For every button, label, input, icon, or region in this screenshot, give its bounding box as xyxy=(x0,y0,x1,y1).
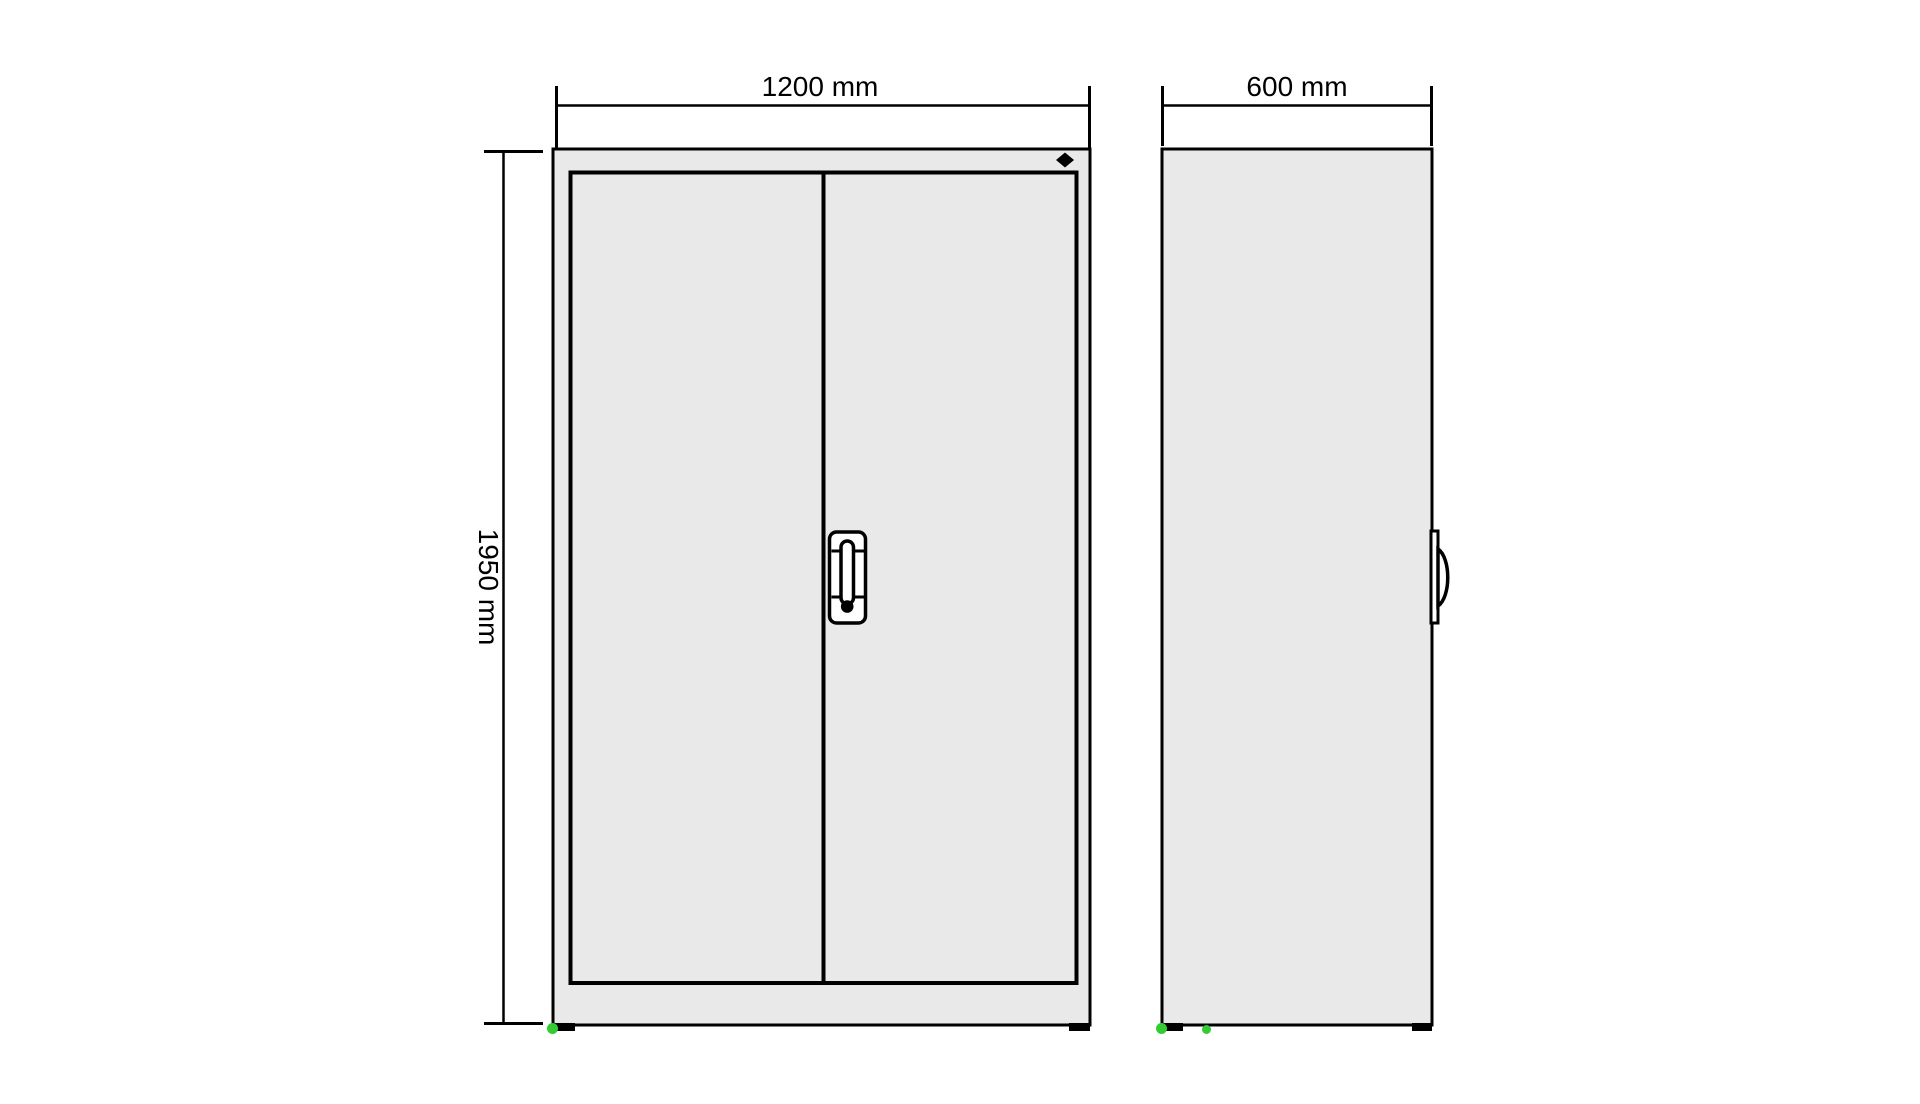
dimension-width-label: 1200 mm xyxy=(762,71,879,102)
front-view xyxy=(547,149,1090,1034)
door-handle xyxy=(830,532,866,623)
dimension-height-label: 1950 mm xyxy=(473,529,504,646)
side-view xyxy=(1156,149,1448,1034)
side-foot-right xyxy=(1412,1023,1432,1031)
side-handle-profile xyxy=(1431,531,1448,623)
side-foot-marker-dot-left xyxy=(1156,1023,1167,1034)
dimension-depth-label: 600 mm xyxy=(1246,71,1347,102)
front-foot-right xyxy=(1069,1023,1090,1031)
dimension-depth: 600 mm xyxy=(1162,71,1432,146)
handle-grip-bar xyxy=(841,541,854,604)
front-foot-marker-dot xyxy=(547,1023,558,1034)
dimension-height: 1950 mm xyxy=(473,151,543,1024)
side-cabinet-body xyxy=(1162,149,1432,1025)
dimension-width: 1200 mm xyxy=(556,71,1090,148)
keyhole-icon xyxy=(841,600,854,613)
technical-drawing: 1200 mm 600 mm 1950 mm xyxy=(0,0,1920,1104)
side-foot-marker-dot-mid xyxy=(1202,1025,1211,1034)
side-handle-grip-arc xyxy=(1438,549,1448,606)
drawing-canvas: 1200 mm 600 mm 1950 mm xyxy=(0,0,1920,1104)
